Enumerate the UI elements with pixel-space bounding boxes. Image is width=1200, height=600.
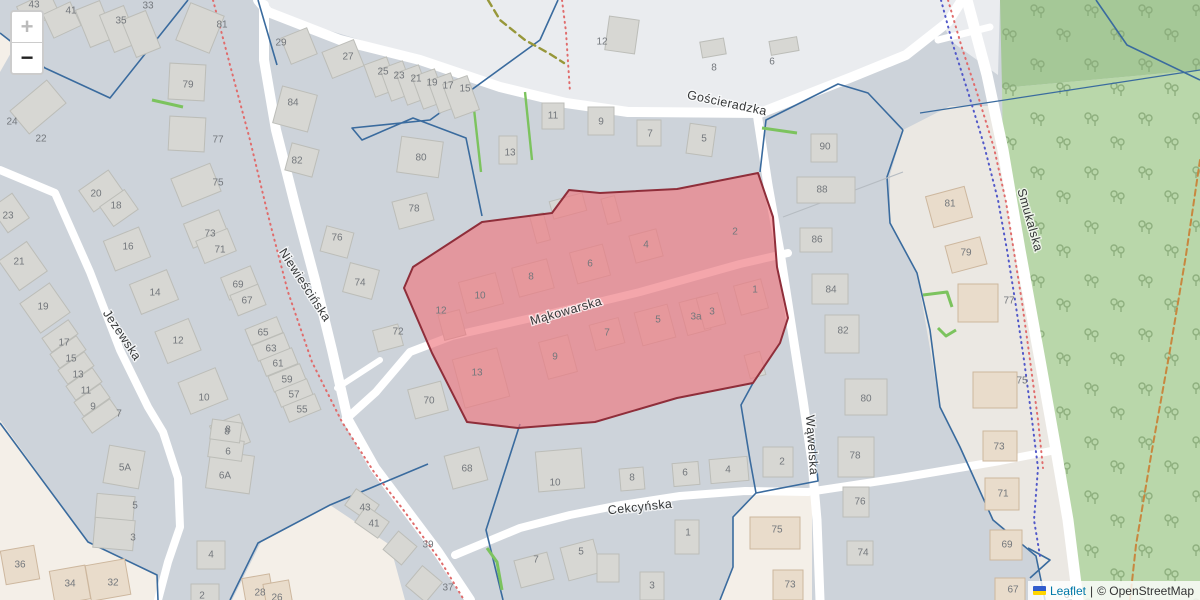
house-number: 6 [682, 468, 688, 479]
house-number: 7 [604, 328, 610, 339]
house-number: 22 [35, 134, 47, 145]
house-number: 17 [58, 338, 70, 349]
map-svg[interactable]: GościeradzkaMąkowarskaNiewieścińskaJezew… [0, 0, 1200, 600]
house-number: 76 [854, 497, 866, 508]
house-number: 73 [993, 442, 1005, 453]
building [168, 116, 206, 152]
house-number: 33 [142, 1, 154, 12]
house-number: 73 [204, 229, 216, 240]
house-number: 34 [64, 579, 76, 590]
house-number: 15 [459, 84, 471, 95]
attribution-separator: | [1090, 584, 1093, 598]
house-number: 69 [1001, 540, 1013, 551]
house-number: 79 [960, 248, 972, 259]
house-number: 59 [281, 375, 293, 386]
house-number: 67 [1007, 585, 1019, 596]
house-number: 82 [291, 156, 303, 167]
house-number: 67 [241, 296, 253, 307]
house-number: 28 [254, 588, 266, 599]
house-number: 57 [288, 390, 300, 401]
house-number: 4 [725, 465, 731, 476]
house-number: 10 [549, 478, 561, 489]
house-number: 2 [199, 591, 205, 600]
house-number: 78 [408, 204, 420, 215]
house-number: 11 [81, 386, 92, 397]
house-number: 17 [442, 81, 454, 92]
house-number: 1 [752, 285, 758, 296]
house-number: 3 [649, 581, 655, 592]
house-number: 84 [825, 285, 837, 296]
house-number: 15 [65, 354, 77, 365]
building [973, 372, 1017, 408]
house-number: 5 [655, 315, 661, 326]
house-number: 13 [471, 368, 483, 379]
house-number: 61 [272, 359, 284, 370]
zoom-out-button[interactable]: − [12, 43, 42, 73]
building [93, 517, 135, 550]
house-number: 9 [90, 402, 96, 413]
house-number: 36 [14, 560, 26, 571]
house-number: 80 [860, 394, 872, 405]
zoom-control: + − [10, 10, 44, 75]
house-number: 5 [578, 547, 584, 558]
house-number: 3 [130, 533, 136, 544]
attribution-bar: Leaflet | © OpenStreetMap [1028, 581, 1200, 600]
house-number: 41 [65, 6, 77, 17]
house-number: 11 [548, 111, 559, 122]
house-number: 43 [359, 503, 371, 514]
house-number: 12 [596, 37, 608, 48]
house-number: 82 [837, 326, 849, 337]
house-number: 63 [265, 344, 277, 355]
house-number: 13 [72, 370, 84, 381]
house-number: 6 [587, 259, 593, 270]
house-number: 7 [116, 409, 122, 420]
house-number: 23 [393, 71, 405, 82]
house-number: 2 [732, 227, 738, 238]
house-number: 5 [132, 501, 138, 512]
house-number: 76 [331, 233, 343, 244]
house-number: 75 [1016, 376, 1028, 387]
leaflet-link[interactable]: Leaflet [1050, 584, 1086, 598]
house-number: 4 [643, 240, 649, 251]
house-number: 19 [426, 78, 438, 89]
house-number: 75 [771, 525, 783, 536]
house-number: 7 [533, 555, 539, 566]
house-number: 6 [225, 447, 231, 458]
house-number: 71 [214, 245, 226, 256]
house-number: 41 [368, 519, 380, 530]
house-number: 75 [212, 178, 224, 189]
house-number: 73 [784, 580, 796, 591]
building [763, 447, 793, 477]
house-number: 12 [172, 336, 184, 347]
building [191, 584, 219, 600]
house-number: 5A [119, 463, 132, 474]
house-number: 84 [287, 98, 299, 109]
house-number: 74 [857, 548, 869, 559]
house-number: 79 [182, 80, 194, 91]
house-number: 16 [122, 242, 134, 253]
building [958, 284, 998, 322]
house-number: 77 [1003, 296, 1015, 307]
house-number: 20 [90, 189, 102, 200]
house-number: 74 [354, 278, 366, 289]
house-number: 13 [504, 148, 516, 159]
house-number: 6 [769, 57, 775, 68]
house-number: 65 [257, 328, 269, 339]
house-number: 3 [709, 307, 715, 318]
building [605, 16, 639, 54]
house-number: 12 [435, 306, 447, 317]
house-number: 88 [816, 185, 828, 196]
map-canvas[interactable]: GościeradzkaMąkowarskaNiewieścińskaJezew… [0, 0, 1200, 600]
map-root: GościeradzkaMąkowarskaNiewieścińskaJezew… [0, 0, 1200, 600]
house-number: 10 [474, 291, 486, 302]
house-number: 29 [275, 38, 287, 49]
house-number: 68 [461, 464, 473, 475]
house-number: 7 [647, 129, 653, 140]
house-number: 6A [219, 471, 232, 482]
house-number: 25 [377, 67, 389, 78]
house-number: 78 [849, 451, 861, 462]
house-number: 43 [28, 0, 40, 11]
house-number: 8 [629, 473, 635, 484]
house-number: 70 [423, 396, 435, 407]
house-number: 21 [13, 257, 25, 268]
house-number: 27 [342, 52, 354, 63]
house-number: 2 [779, 457, 785, 468]
openstreetmap-link[interactable]: © OpenStreetMap [1097, 584, 1194, 598]
house-number: 90 [819, 142, 831, 153]
house-number: 26 [271, 593, 283, 600]
house-number: 80 [415, 153, 427, 164]
house-number: 8 [224, 427, 230, 438]
house-number: 72 [392, 327, 404, 338]
house-number: 23 [2, 211, 14, 222]
house-number: 55 [296, 405, 308, 416]
house-number: 77 [212, 135, 224, 146]
house-number: 35 [115, 16, 127, 27]
house-number: 86 [811, 235, 823, 246]
house-number: 5 [701, 134, 707, 145]
house-number: 1 [685, 528, 691, 539]
house-number: 9 [552, 352, 558, 363]
house-number: 21 [410, 74, 422, 85]
house-number: 69 [232, 280, 244, 291]
building [597, 554, 619, 582]
ukraine-flag-icon [1033, 586, 1046, 595]
house-number: 37 [442, 583, 454, 594]
house-number: 24 [6, 117, 18, 128]
house-number: 18 [110, 201, 122, 212]
building [700, 38, 726, 58]
house-number: 3a [690, 312, 702, 323]
house-number: 9 [598, 117, 604, 128]
house-number: 39 [422, 540, 434, 551]
house-number: 10 [198, 393, 210, 404]
house-number: 32 [107, 578, 119, 589]
house-number: 8 [528, 272, 534, 283]
zoom-in-button[interactable]: + [12, 12, 42, 43]
house-number: 8 [711, 63, 717, 74]
house-number: 81 [944, 199, 956, 210]
house-number: 4 [208, 550, 214, 561]
house-number: 81 [216, 20, 228, 31]
house-number: 71 [997, 489, 1009, 500]
house-number: 14 [149, 288, 161, 299]
house-number: 19 [37, 302, 49, 313]
